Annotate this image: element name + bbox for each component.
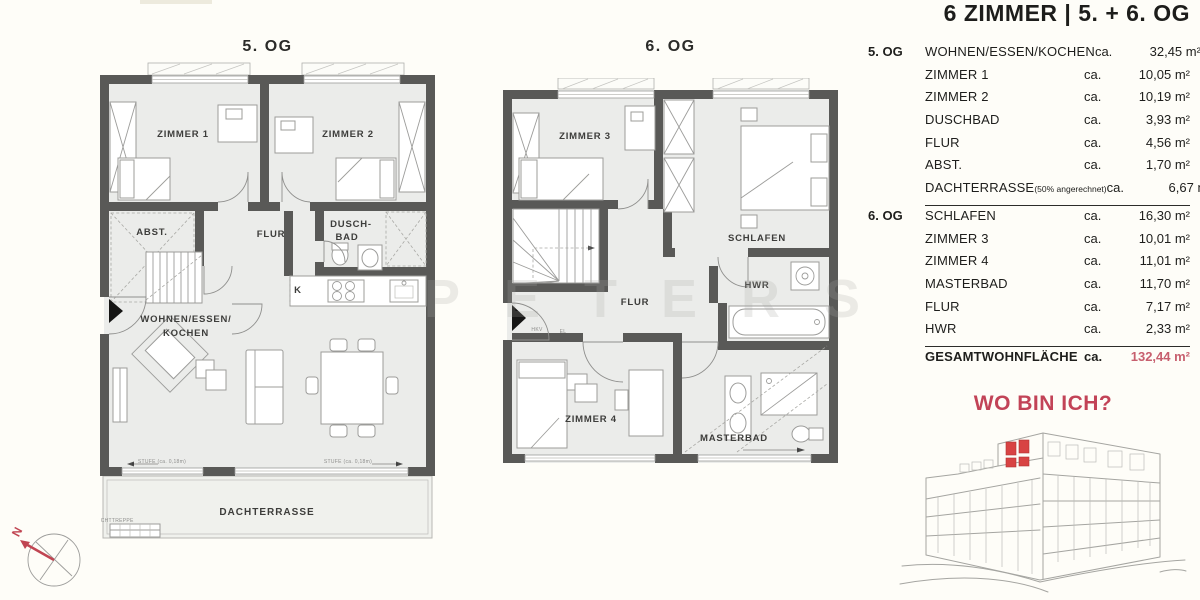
- room-label-flur: FLUR: [257, 229, 286, 240]
- table-row: FLUR ca. 7,17 m²: [868, 299, 1190, 322]
- room-label-zimmer3: ZIMMER 3: [559, 131, 611, 142]
- dachterrasse-note: (50% angerechnet): [1034, 184, 1106, 194]
- plan-title-6og: 6. OG: [503, 38, 838, 56]
- table-row: ZIMMER 4 ca. 11,01 m²: [868, 253, 1190, 276]
- table-row: ZIMMER 3 ca. 10,01 m²: [868, 231, 1190, 254]
- fluchttreppe-label: FLUCHTTREPPE: [100, 518, 134, 524]
- room-label-masterbad: MASTERBAD: [700, 433, 768, 444]
- og5-kitchen: [290, 276, 426, 306]
- floorplan-sheet: 5. OG 6. OG: [0, 0, 1200, 600]
- room-label-dachterrasse: DACHTERRASSE: [219, 507, 314, 518]
- page-title: 6 ZIMMER | 5. + 6. OG: [868, 0, 1190, 27]
- area-table: 5. OG WOHNEN/ESSEN/KOCHEN ca. 32,45 m² Z…: [868, 44, 1190, 372]
- table-row: 5. OG WOHNEN/ESSEN/KOCHEN ca. 32,45 m²: [868, 44, 1190, 67]
- floorplan-6og: ZIMMER 3 SCHLAFEN FLUR HWR HKV EL ZIMMER…: [503, 78, 838, 468]
- table-row: 6. OG SCHLAFEN ca. 16,30 m²: [868, 208, 1190, 231]
- floor-label-5og: 5. OG: [868, 44, 925, 59]
- og5-awnings: [148, 63, 404, 75]
- table-row: MASTERBAD ca. 11,70 m²: [868, 276, 1190, 299]
- room-label-abst: ABST.: [136, 227, 167, 238]
- compass-north-label: N: [9, 525, 25, 539]
- room-label-wohnen-1: WOHNEN/ESSEN/: [140, 314, 231, 325]
- table-row: HWR ca. 2,33 m²: [868, 321, 1190, 344]
- el-label: EL: [560, 329, 567, 335]
- room-label-zimmer1: ZIMMER 1: [157, 129, 209, 140]
- og6-awnings: [558, 78, 809, 89]
- building-outline: [926, 433, 1160, 580]
- cropped-logo-artifact: [140, 0, 212, 4]
- total-row: GESAMTWOHNFLÄCHE ca. 132,44 m²: [868, 349, 1190, 372]
- table-row: DACHTERRASSE(50% angerechnet) ca. 6,67 m…: [868, 180, 1190, 203]
- room-label-duschbad-2: BAD: [336, 232, 359, 243]
- table-section-divider: [925, 205, 1190, 206]
- table-row: DUSCHBAD ca. 3,93 m²: [868, 112, 1190, 135]
- total-label: GESAMTWOHNFLÄCHE: [925, 349, 1084, 364]
- floor-label-6og: 6. OG: [868, 208, 925, 223]
- building-locator-sketch: [898, 414, 1188, 599]
- locator-title: WO BIN ICH?: [898, 392, 1188, 416]
- room-label-hwr: HWR: [744, 280, 769, 291]
- table-row: FLUR ca. 4,56 m²: [868, 135, 1190, 158]
- room-label-kueche: K: [294, 285, 302, 296]
- table-row: ZIMMER 2 ca. 10,19 m²: [868, 89, 1190, 112]
- room-label-wohnen-2: KOCHEN: [163, 328, 209, 339]
- table-row: ABST. ca. 1,70 m²: [868, 157, 1190, 180]
- compass-icon: N: [8, 516, 92, 600]
- room-label-schlafen: SCHLAFEN: [728, 233, 786, 244]
- stufe-note-right: STUFE (ca. 0,18m): [324, 459, 372, 465]
- og5-terrace-detail: [110, 524, 160, 537]
- table-total-divider: [925, 346, 1190, 347]
- floorplan-5og: ZIMMER 1 ZIMMER 2 ABST. FLUR DUSCH- BAD …: [100, 62, 435, 540]
- room-label-zimmer2: ZIMMER 2: [322, 129, 374, 140]
- hkv-label: HKV: [531, 327, 543, 333]
- plan-title-5og: 5. OG: [100, 38, 435, 56]
- total-value: 132,44 m²: [1114, 349, 1190, 364]
- room-label-duschbad-1: DUSCH-: [330, 219, 372, 230]
- og6-stairs: [513, 209, 599, 283]
- table-row: ZIMMER 1 ca. 10,05 m²: [868, 67, 1190, 90]
- room-label-flur: FLUR: [621, 297, 650, 308]
- room-label-zimmer4: ZIMMER 4: [565, 414, 617, 425]
- stufe-note-left: STUFE (ca. 0,18m): [138, 459, 186, 465]
